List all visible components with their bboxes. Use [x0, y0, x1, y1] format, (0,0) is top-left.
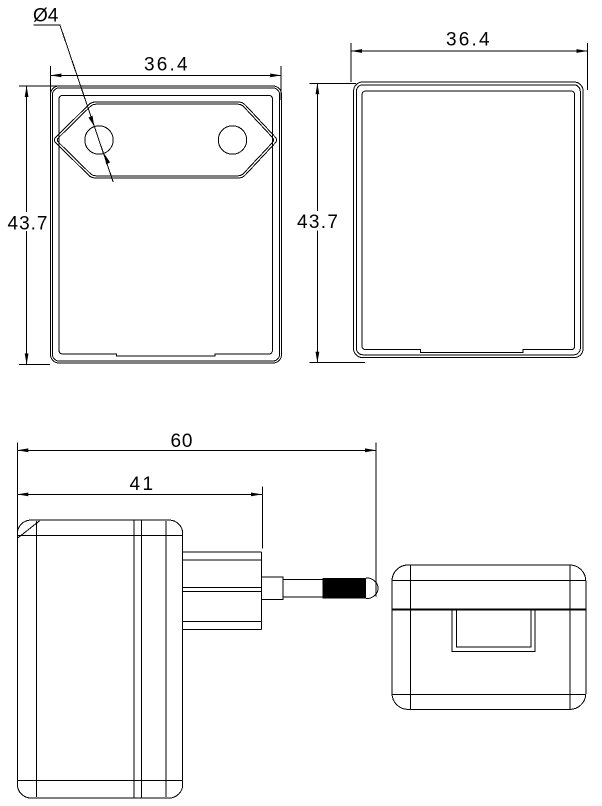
svg-text:43.7: 43.7 [8, 213, 49, 234]
svg-text:36.4: 36.4 [144, 54, 190, 75]
svg-text:36.4: 36.4 [446, 30, 492, 51]
svg-text:60: 60 [171, 431, 194, 452]
svg-text:43.7: 43.7 [297, 212, 339, 233]
svg-text:41: 41 [130, 474, 156, 495]
svg-text:Ø4: Ø4 [33, 6, 59, 27]
